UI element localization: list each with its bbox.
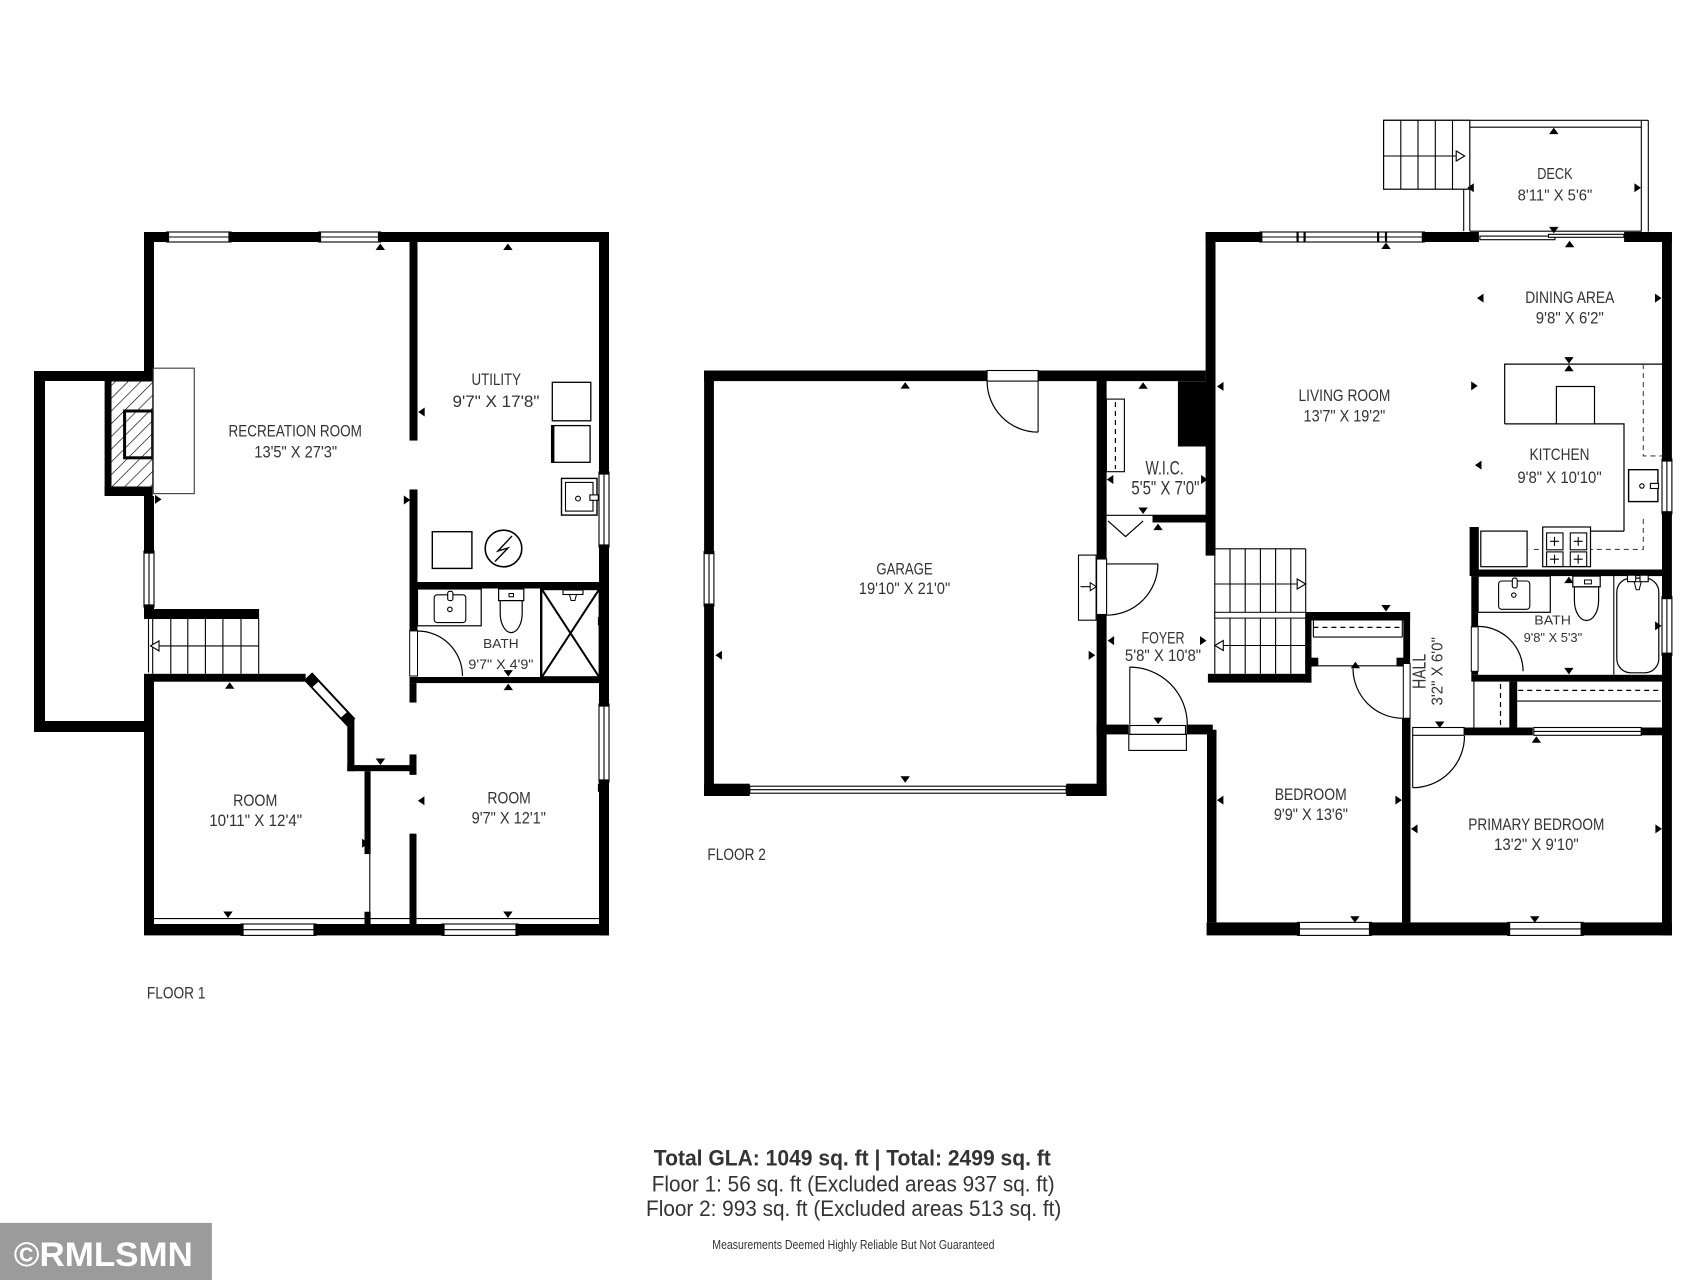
svg-text:9'8" X 6'2": 9'8" X 6'2" [1536,309,1604,328]
svg-text:10'11" X 12'4": 10'11" X 12'4" [209,812,302,830]
svg-text:LIVING ROOM: LIVING ROOM [1299,386,1391,405]
svg-text:ROOM: ROOM [487,790,530,808]
svg-text:9'7" X 4'9": 9'7" X 4'9" [468,657,533,672]
svg-text:5'8" X 10'8": 5'8" X 10'8" [1125,646,1201,665]
svg-text:13'7" X 19'2": 13'7" X 19'2" [1304,407,1386,426]
svg-text:KITCHEN: KITCHEN [1530,445,1590,464]
svg-text:13'5" X 27'3": 13'5" X 27'3" [254,443,337,461]
svg-text:5'5" X 7'0": 5'5" X 7'0" [1131,479,1199,500]
svg-text:Floor 2: 993 sq. ft (Excluded: Floor 2: 993 sq. ft (Excluded areas 513 … [646,1196,1061,1221]
svg-text:DINING AREA: DINING AREA [1525,288,1615,307]
svg-text:Total GLA: 1049 sq. ft | Total: Total GLA: 1049 sq. ft | Total: 2499 sq.… [654,1145,1052,1170]
svg-text:W.I.C.: W.I.C. [1145,457,1183,479]
svg-text:FLOOR 1: FLOOR 1 [147,984,206,1003]
svg-text:13'2" X 9'10": 13'2" X 9'10" [1494,835,1579,854]
svg-text:3'2" X 6'0": 3'2" X 6'0" [1430,637,1447,705]
svg-text:9'7" X 17'8": 9'7" X 17'8" [453,393,540,411]
svg-text:GARAGE: GARAGE [876,560,932,579]
svg-text:DECK: DECK [1537,166,1573,183]
svg-text:9'9" X 13'6": 9'9" X 13'6" [1274,805,1348,824]
svg-text:8'11" X 5'6": 8'11" X 5'6" [1518,187,1593,204]
svg-text:BATH: BATH [1534,612,1571,627]
svg-text:9'7" X 12'1": 9'7" X 12'1" [472,810,547,828]
svg-text:UTILITY: UTILITY [472,371,522,389]
svg-text:9'8" X 5'3": 9'8" X 5'3" [1524,630,1583,645]
svg-text:9'8" X 10'10": 9'8" X 10'10" [1517,468,1601,487]
svg-text:ROOM: ROOM [233,792,277,810]
svg-text:FOYER: FOYER [1142,628,1185,647]
svg-text:BATH: BATH [483,637,518,651]
svg-text:RECREATION ROOM: RECREATION ROOM [229,423,362,441]
svg-text:©RMLSMN: ©RMLSMN [14,1236,193,1274]
svg-text:HALL: HALL [1409,654,1430,689]
svg-text:Floor 1: 56 sq. ft (Excluded a: Floor 1: 56 sq. ft (Excluded areas 937 s… [652,1172,1055,1197]
svg-text:BEDROOM: BEDROOM [1275,785,1347,804]
svg-text:PRIMARY BEDROOM: PRIMARY BEDROOM [1468,815,1604,834]
svg-text:19'10" X 21'0": 19'10" X 21'0" [859,579,950,598]
svg-text:Measurements Deemed Highly Rel: Measurements Deemed Highly Reliable But … [712,1237,994,1252]
svg-text:FLOOR 2: FLOOR 2 [707,845,766,864]
